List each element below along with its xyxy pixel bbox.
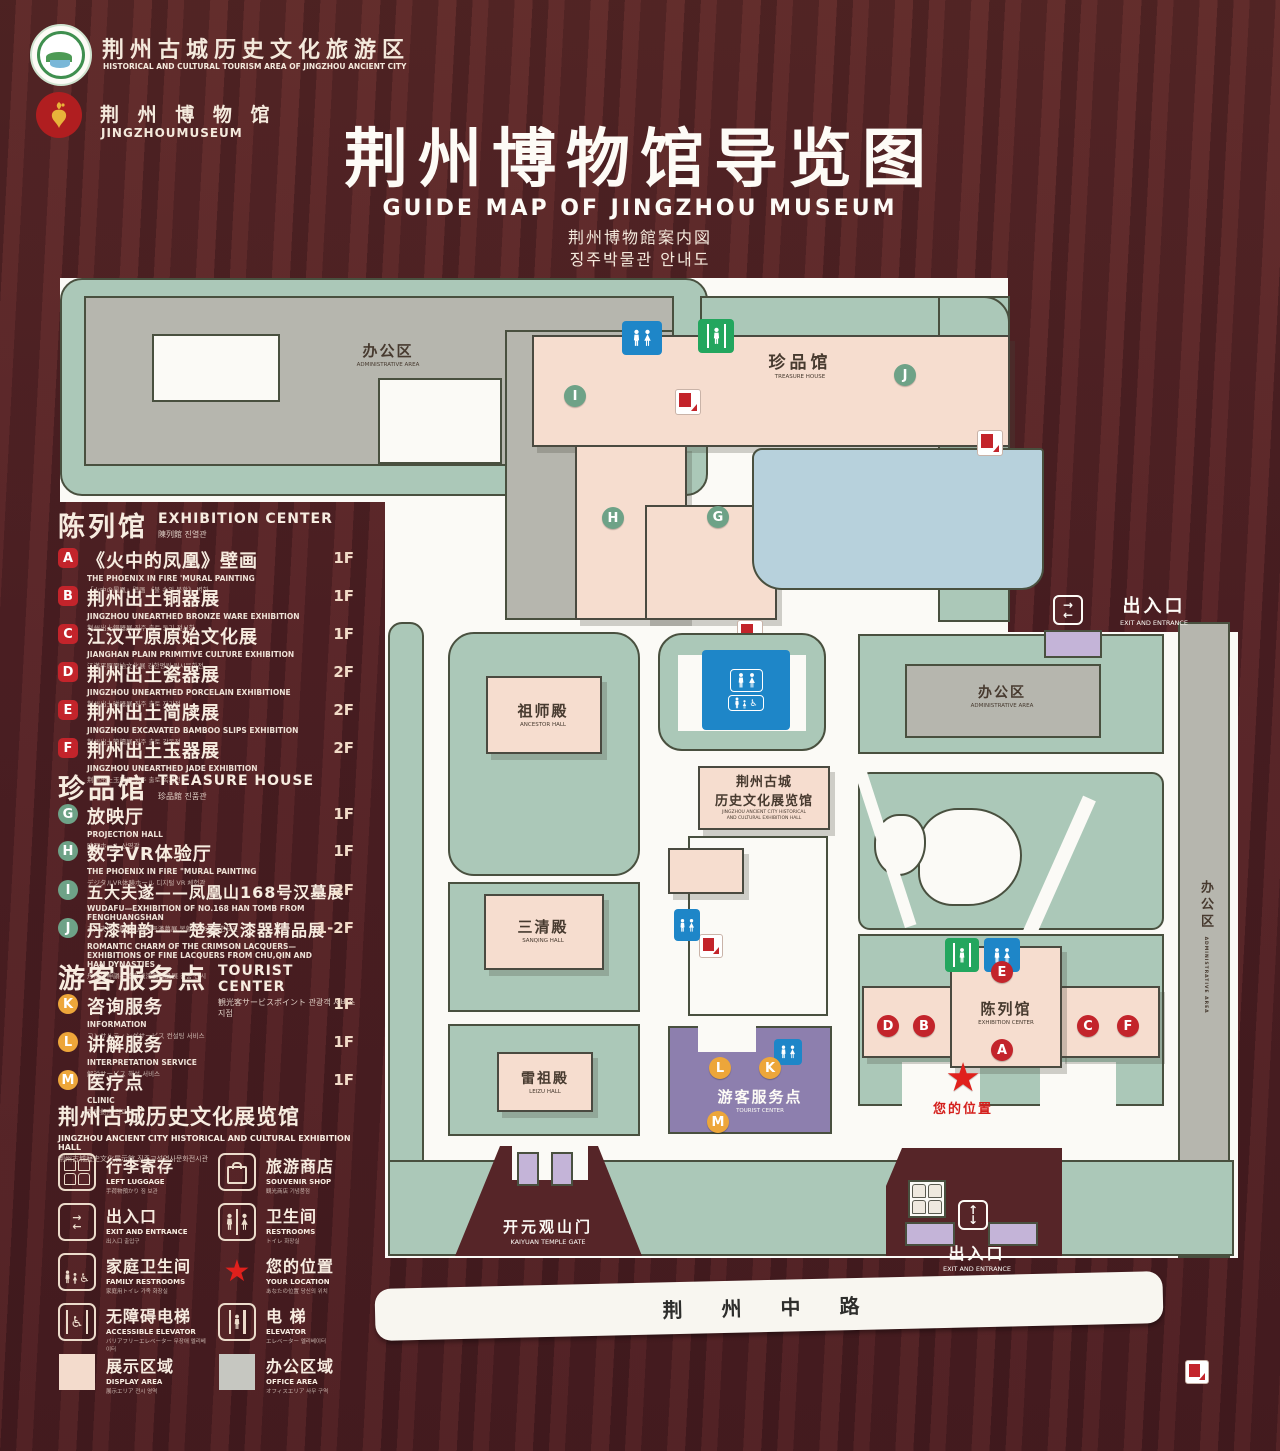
- marker-badge-E: E: [58, 700, 78, 720]
- admin-nw-label: 办公区 ADMINISTRATIVE AREA: [357, 340, 420, 368]
- page-title-en: GUIDE MAP OF JINGZHOU MUSEUM: [383, 196, 898, 221]
- map-wall-west: [388, 622, 424, 1236]
- legend-office-area: 办公区域 OFFICE AREA オフィスエリア 사무 구역: [218, 1353, 370, 1395]
- accessible-elevator-icon: [699, 934, 723, 958]
- museum-name-en: JINGZHOUMUSEUM: [101, 126, 243, 140]
- office-area-swatch: [218, 1353, 256, 1391]
- map-marker-M: M: [707, 1111, 729, 1133]
- family-restrooms-icon: ♿: [58, 1253, 96, 1291]
- exhibition-center-notch: [1040, 1062, 1116, 1108]
- map-marker-E: E: [991, 961, 1013, 983]
- treasure-house-label: 珍品馆 TREASURE HOUSE: [769, 348, 832, 380]
- elevator-icon: [218, 1303, 256, 1341]
- marker-badge-D: D: [58, 662, 78, 682]
- legend-elevator: 电 梯 ELEVATOR エレベーター 엘리베이터: [218, 1303, 370, 1345]
- exhibition-hall-label: 荆州古城 历史文化展览馆 JINGZHOU ANCIENT CITY HISTO…: [715, 771, 813, 821]
- your-location-label: 您的位置: [933, 1098, 993, 1117]
- courtyard-ancestor: [448, 632, 640, 876]
- tourist-center-notch: [698, 1024, 756, 1052]
- map-marker-G: G: [707, 506, 729, 528]
- legend-left-luggage: 行李寄存 LEFT LUGGAGE 手荷物預かり 짐 보관: [58, 1153, 210, 1195]
- marker-badge-F: F: [58, 738, 78, 758]
- legend-your-location: ★ 您的位置 YOUR LOCATION あなたの位置 당신의 위치: [218, 1253, 370, 1295]
- exit-entrance-icon: →←: [58, 1203, 96, 1241]
- map-marker-F: F: [1117, 1015, 1139, 1037]
- accessible-elevator-icon: [675, 389, 701, 415]
- kaiyuan-gate-label: 开元观山门 KAIYUAN TEMPLE GATE: [503, 1216, 593, 1246]
- accessible-elevator-icon: [977, 430, 1003, 456]
- restroom-icon: [622, 321, 662, 355]
- marker-badge-B: B: [58, 586, 78, 606]
- marker-badge-C: C: [58, 624, 78, 644]
- legend-souvenir-shop: 旅游商店 SOUVENIR SHOP 観光商店 기념품점: [218, 1153, 370, 1195]
- marker-badge-I: I: [58, 880, 78, 900]
- exit-arrows-icon: ↑↓: [958, 1200, 988, 1230]
- map-marker-A: A: [991, 1039, 1013, 1061]
- map-marker-L: L: [709, 1057, 731, 1079]
- museum-name: 荆 州 博 物 馆: [100, 100, 275, 127]
- tourism-area-name: 荆州古城历史文化旅游区: [102, 32, 410, 64]
- road-band: 荆 州 中 路: [375, 1271, 1164, 1341]
- marker-badge-L: L: [58, 1032, 78, 1052]
- marker-badge-H: H: [58, 841, 78, 861]
- restrooms-icon: [218, 1203, 256, 1241]
- courtyard-northwest-1: [152, 334, 280, 402]
- road-label: 荆 州 中 路: [662, 1289, 875, 1323]
- admin-mid-label: 办公区 ADMINISTRATIVE AREA: [971, 682, 1034, 709]
- legend-panel: 陈列馆 EXHIBITION CENTER 陳列館 진열관 A 《火中的凤凰》壁…: [58, 505, 360, 1405]
- souvenir-shop-icon: [218, 1153, 256, 1191]
- tourist-center-label: 游客服务点 TOURIST CENTER: [717, 1086, 802, 1114]
- marker-badge-G: G: [58, 804, 78, 824]
- exit-icon: [698, 319, 734, 353]
- page-title: 荆州博物馆导览图: [344, 108, 936, 200]
- map-marker-B: B: [913, 1015, 935, 1037]
- marker-badge-A: A: [58, 548, 78, 568]
- your-location-star: ★: [945, 1058, 981, 1098]
- gate-pillar: [551, 1152, 573, 1186]
- marker-badge-K: K: [58, 994, 78, 1014]
- exit-bottom-label: 出入口 EXIT AND ENTRANCE: [943, 1240, 1011, 1273]
- sanqing-hall-label: 三清殿 SANQING HALL: [517, 916, 568, 944]
- legend-accessible-elevator: ♿ 无障碍电梯 ACCESSIBLE ELEVATOR バリアフリーエレベーター…: [58, 1303, 210, 1353]
- your-location-icon: ★: [218, 1253, 256, 1291]
- left-luggage-icon: [908, 1180, 946, 1218]
- exhibition-center-label: 陈列馆 EXHIBITION CENTER: [978, 998, 1034, 1026]
- legend-display-area: 展示区域 DISPLAY AREA 展示エリア 전시 영역: [58, 1353, 210, 1395]
- exhibition-hall-wing: [668, 848, 744, 894]
- map-marker-D: D: [877, 1015, 899, 1037]
- accessible-elevator-icon: [1185, 1360, 1209, 1384]
- exit-icon: [945, 938, 979, 972]
- gatehouse-top: [1044, 630, 1102, 658]
- exit-top-label: 出入口 EXIT AND ENTRANCE: [1120, 592, 1188, 627]
- exit-arrows-icon: →←: [1053, 595, 1083, 625]
- legend-family-restrooms: ♿ 家庭卫生间 FAMILY RESTROOMS 家庭用トイレ 가족 화장실: [58, 1253, 210, 1295]
- legend-restrooms: 卫生间 RESTROOMS トイレ 화장실: [218, 1203, 370, 1245]
- tourism-area-logo: [30, 24, 92, 86]
- map-marker-I: I: [564, 385, 586, 407]
- museum-logo: [36, 92, 82, 138]
- map-marker-C: C: [1077, 1015, 1099, 1037]
- courtyard-northwest-2: [378, 378, 502, 464]
- marker-badge-J: J: [58, 918, 78, 938]
- exhibition-center-east-wing: [1060, 986, 1160, 1058]
- restroom-icon: [674, 909, 700, 941]
- lake: [752, 448, 1044, 590]
- section-treasure-house: 珍品馆 TREASURE HOUSE 珍品館 진품관: [58, 767, 314, 806]
- admin-east-label: 办公区 ADMINISTRATIVE AREA: [1196, 880, 1215, 1014]
- map-marker-K: K: [759, 1057, 781, 1079]
- display-area-swatch: [58, 1353, 96, 1391]
- accessible-elevator-icon: ♿: [58, 1303, 96, 1341]
- gate-pillar: [517, 1152, 539, 1186]
- leizu-hall-label: 雷祖殿 LEIZU HALL: [521, 1068, 569, 1095]
- page-title-ja: 荆州博物館案内図: [568, 224, 712, 248]
- marker-badge-M: M: [58, 1070, 78, 1090]
- exhibition-center-west-wing: [862, 986, 954, 1058]
- map-marker-J: J: [894, 364, 916, 386]
- page-title-ko: 징주박물관 안내도: [570, 246, 711, 270]
- family-restroom-icon: ♿: [702, 650, 790, 730]
- section-exhibition-center: 陈列馆 EXHIBITION CENTER 陳列館 진열관: [58, 505, 333, 544]
- map-marker-H: H: [602, 507, 624, 529]
- phoenix-icon: [46, 100, 72, 130]
- left-luggage-icon: [58, 1153, 96, 1191]
- ancestor-hall-label: 祖师殿 ANCESTOR HALL: [517, 700, 568, 728]
- legend-exit-entrance: →← 出入口 EXIT AND ENTRANCE 出入口 출입구: [58, 1203, 210, 1245]
- tourism-area-name-en: HISTORICAL AND CULTURAL TOURISM AREA OF …: [103, 62, 406, 71]
